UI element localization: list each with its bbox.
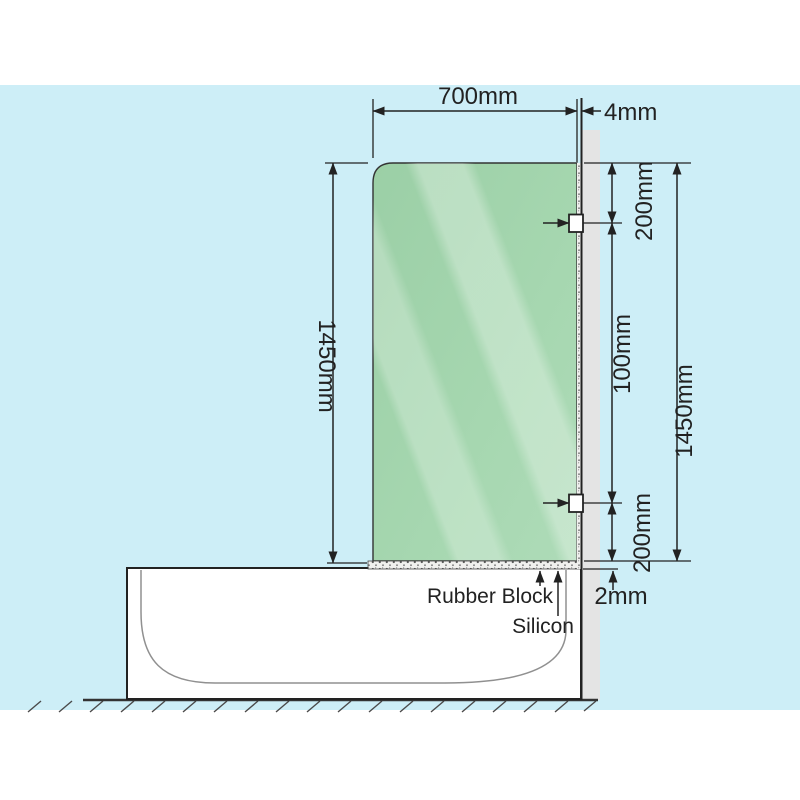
dimension-1450mm-right-text: 1450mm — [671, 364, 698, 457]
dimension-4mm-text: 4mm — [604, 99, 657, 126]
installation-diagram: 700mm 4mm 1450mm 200mm 100mm 200mm 1450m… — [0, 0, 800, 800]
wall — [582, 130, 600, 700]
dimension-2mm-text: 2mm — [594, 583, 647, 610]
top-bracket — [569, 215, 583, 233]
dimension-700mm-text: 700mm — [438, 83, 518, 110]
silicon-bottom-strip — [368, 561, 581, 569]
dimension-200mm-bottom-text: 200mm — [629, 493, 656, 573]
dimension-1450mm-left-text: 1450mm — [313, 319, 340, 412]
dimension-100mm-text: 100mm — [609, 314, 636, 394]
dimension-200mm-top-text: 200mm — [631, 161, 658, 241]
label-rubber-block: Rubber Block — [427, 585, 554, 608]
bottom-bracket — [569, 495, 583, 513]
label-silicon: Silicon — [512, 615, 574, 638]
